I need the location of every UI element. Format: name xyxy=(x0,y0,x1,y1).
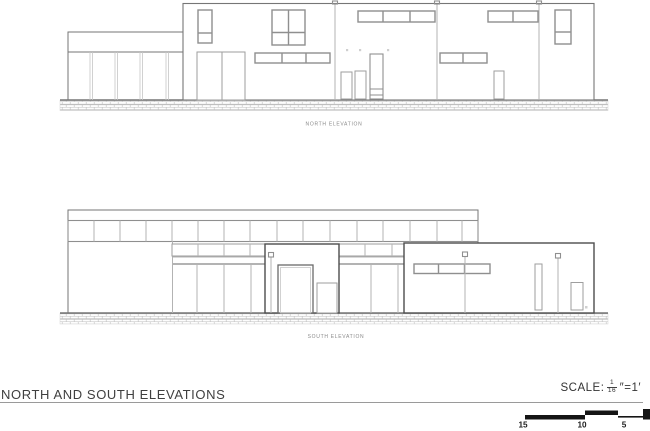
scale-fraction-denominator: 16 xyxy=(607,387,616,395)
sheet-title: NORTH AND SOUTH ELEVATIONS xyxy=(1,387,225,402)
graphic-scale-bar: 15 10 5 xyxy=(500,406,650,431)
scale-bar-tick-label-10: 10 xyxy=(577,421,587,430)
north-glass-doors xyxy=(197,52,245,100)
scale-bar-tick-label-5: 5 xyxy=(622,421,627,430)
scale-note-units: ″=1′ xyxy=(620,382,641,394)
south-right-block xyxy=(404,243,594,313)
south-elevation-drawing: SOUTH ELEVATION xyxy=(60,210,608,340)
north-ground-strip xyxy=(60,100,608,111)
title-rule xyxy=(0,402,643,403)
north-elevation-drawing: NORTH ELEVATION xyxy=(60,1,608,128)
scale-fraction-numerator: 1 xyxy=(610,380,614,387)
scale-bar-tick-label-15: 15 xyxy=(518,421,528,430)
south-ground-strip xyxy=(60,313,608,324)
scale-bar-segments xyxy=(525,409,650,420)
north-elevation-label: NORTH ELEVATION xyxy=(306,122,363,128)
scale-note-label: SCALE: xyxy=(561,382,605,394)
scale-note: SCALE: 1 16 ″=1′ xyxy=(561,379,642,396)
south-elevation-label: SOUTH ELEVATION xyxy=(308,334,365,340)
scale-fraction: 1 16 xyxy=(607,380,616,395)
elevation-sheet-drawing: NORTH ELEVATION xyxy=(0,0,650,431)
south-entry-block xyxy=(265,244,339,313)
north-one-story-wing xyxy=(68,32,183,100)
